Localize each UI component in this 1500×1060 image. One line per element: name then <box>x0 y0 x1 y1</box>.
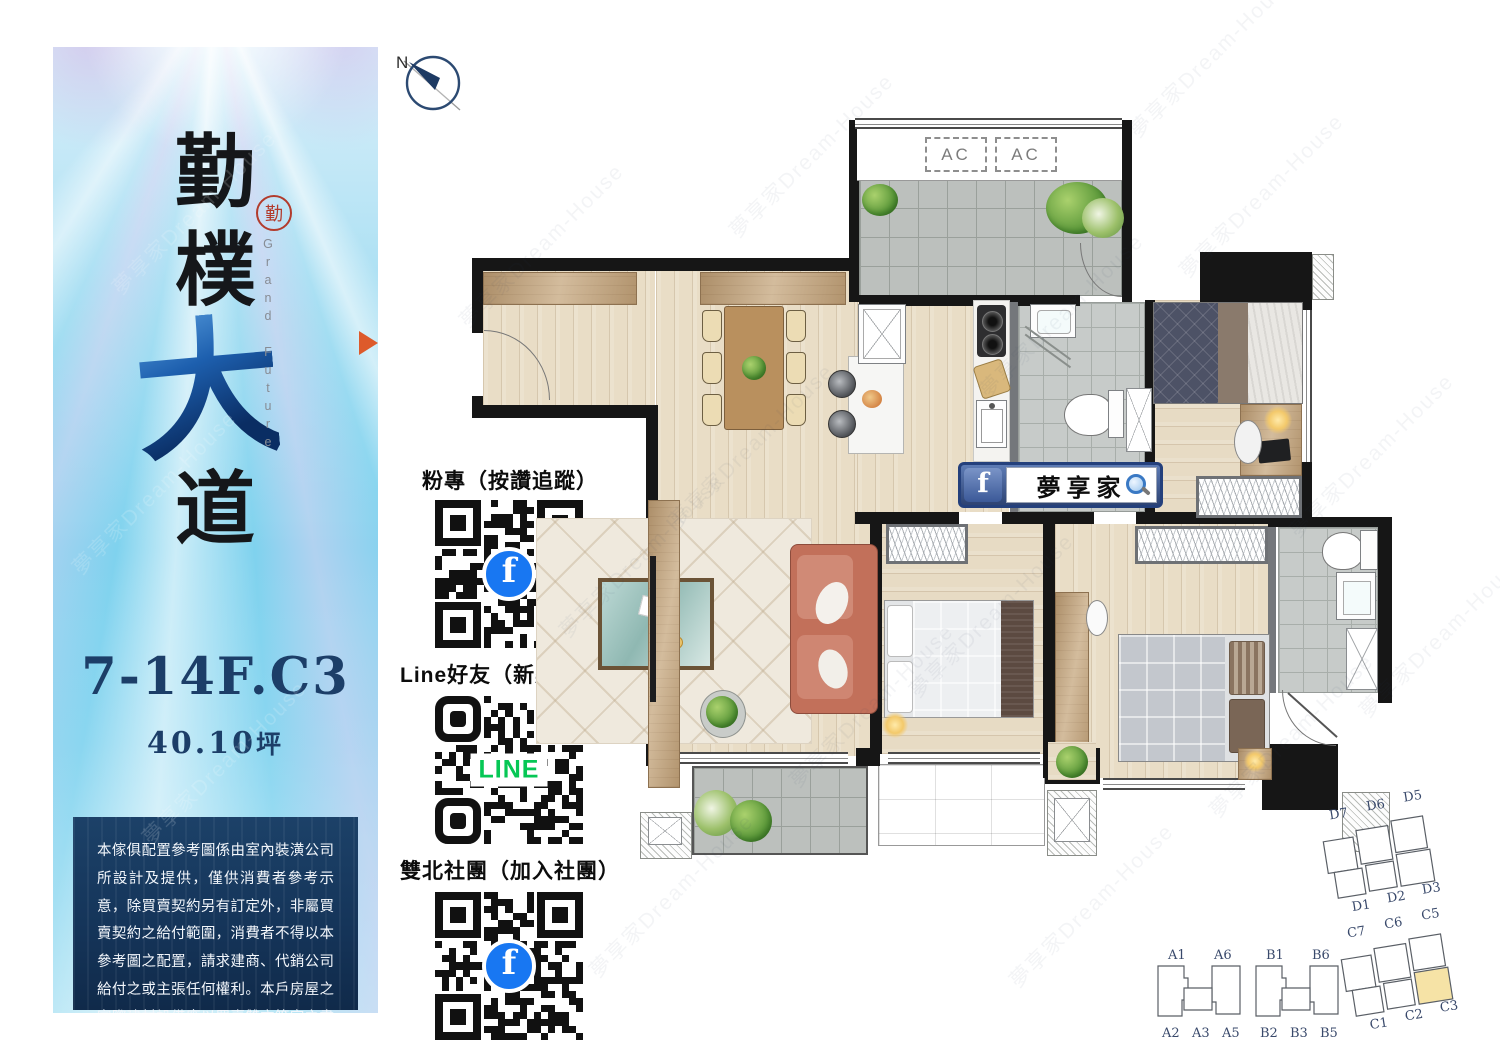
plant <box>862 184 898 216</box>
wall <box>855 512 959 524</box>
qr-eye-icon <box>435 500 481 546</box>
terrace <box>878 764 1045 846</box>
column-core <box>648 817 682 845</box>
seal-stamp-icon: 勤 <box>256 195 292 231</box>
bar-stool <box>828 370 856 398</box>
facebook-logo-icon: f <box>482 547 536 601</box>
facebook-logo-icon: f <box>482 939 536 993</box>
bed-master <box>884 600 1034 718</box>
banner-subtitle: Grand Future <box>261 237 275 453</box>
lamp <box>882 712 908 738</box>
wall <box>1002 512 1094 524</box>
banner-arrow-icon <box>359 331 378 355</box>
ac-unit-1: AC <box>925 137 987 172</box>
toilet <box>1322 532 1364 570</box>
area-label: 40.10坪 <box>53 725 378 761</box>
dining-chair <box>786 352 806 384</box>
wall <box>1200 252 1312 302</box>
compass-icon: N <box>394 48 468 116</box>
qr-eye-icon <box>435 798 481 844</box>
qr-eye-icon <box>537 892 583 938</box>
svg-text:N: N <box>396 53 408 72</box>
closet-bedroom-2 <box>1135 526 1268 564</box>
qr-code-facebook-group[interactable]: f <box>433 890 585 1042</box>
bed-bedroom-2 <box>1118 634 1270 762</box>
closet-master <box>886 524 968 564</box>
dining-chair <box>702 394 722 426</box>
toilet-tank <box>1108 390 1124 438</box>
dining-cabinet <box>700 272 846 305</box>
window <box>855 118 1122 129</box>
kitchen-sink <box>976 400 1007 448</box>
dining-chair <box>786 394 806 426</box>
lamp <box>1264 406 1292 434</box>
stove <box>977 305 1006 357</box>
bathroom-sink <box>1336 572 1376 620</box>
banner-title-char-4: 道 <box>163 469 267 549</box>
search-icon <box>1126 474 1146 494</box>
lamp <box>1244 750 1266 772</box>
toilet-tank <box>1360 530 1378 570</box>
keyplan-block-c: C7 C6 C5 C1 C2 C3 <box>1332 908 1477 1035</box>
plant <box>706 696 738 728</box>
keyplan-block-b: B1 B6 B2 B3 B5 <box>1250 948 1350 1043</box>
banner: 勤 樸 大 道 勤 Grand Future 7-14F.C3 40.10坪 本… <box>53 47 378 1013</box>
desk-chair <box>1234 420 1262 464</box>
banner-title-char-3: 大 <box>129 309 282 471</box>
qr-eye-icon <box>435 602 481 648</box>
column-core <box>1054 798 1090 842</box>
door-swing <box>1282 690 1336 746</box>
dining-chair <box>702 352 722 384</box>
pillow <box>1229 641 1265 695</box>
qr-label-facebook-page: 粉專（按讚追蹤） <box>400 465 620 495</box>
window <box>888 752 1040 764</box>
shoe-cabinet <box>483 272 637 305</box>
wall <box>1043 524 1055 778</box>
refrigerator <box>858 304 906 364</box>
window <box>660 752 848 764</box>
wall <box>1378 517 1392 703</box>
table-plant <box>742 356 766 380</box>
plant <box>730 800 772 842</box>
wall <box>472 258 857 271</box>
facebook-search-badge[interactable]: f 夢享家 <box>958 462 1163 508</box>
wall-column <box>1312 254 1334 300</box>
wall <box>856 748 880 766</box>
bar-stool <box>828 410 856 438</box>
ac-unit-2: AC <box>995 137 1057 172</box>
banner-title-char-1: 勤 <box>163 132 267 212</box>
wall <box>1122 120 1132 302</box>
toilet <box>1064 394 1112 436</box>
washer <box>1346 628 1378 690</box>
bed-bedroom-1 <box>1153 302 1303 404</box>
dining-chair <box>702 310 722 342</box>
pillow <box>1229 699 1265 753</box>
washer <box>1126 388 1152 452</box>
search-field: 夢享家 <box>1006 467 1157 503</box>
ac-strip <box>857 129 1122 181</box>
poster: 勤 樸 大 道 勤 Grand Future 7-14F.C3 40.10坪 本… <box>0 0 1500 1060</box>
keyplan-unit-c3-label: C3 <box>1439 998 1459 1016</box>
search-text: 夢享家 <box>1037 468 1127 503</box>
lamp-shade <box>1086 600 1108 636</box>
wall <box>472 271 483 333</box>
wall <box>472 405 658 418</box>
plant <box>1056 746 1088 778</box>
dining-chair <box>786 310 806 342</box>
wall <box>1262 744 1338 810</box>
sofa <box>790 544 878 714</box>
pillow <box>887 661 913 713</box>
keyplan-block-d: D7 D6 D5 D1 D2 D3 <box>1314 790 1459 917</box>
pillow <box>887 605 913 657</box>
qr-eye-icon <box>435 892 481 938</box>
food-plate <box>862 390 882 408</box>
qr-eye-icon <box>435 994 481 1040</box>
facebook-logo-icon: f <box>964 468 1002 502</box>
disclaimer-box: 本傢俱配置參考圖係由室內裝潢公司所設計及提供，僅供消費者參考示意，除買賣契約另有… <box>73 817 358 1010</box>
qr-label-facebook-group: 雙北社團（加入社團） <box>400 855 620 885</box>
qr-eye-icon <box>435 696 481 742</box>
keyplan-block-a: A1 A6 A2 A3 A5 <box>1152 948 1252 1043</box>
tv <box>650 556 656 702</box>
laptop <box>1257 438 1291 463</box>
unit-label: 7-14F.C3 <box>53 647 378 707</box>
line-logo: LINE <box>471 754 548 787</box>
wall <box>1268 517 1388 527</box>
window <box>1103 778 1245 790</box>
bed-throw <box>1001 601 1033 717</box>
closet-bedroom-1 <box>1196 476 1302 518</box>
plant <box>1082 198 1124 238</box>
